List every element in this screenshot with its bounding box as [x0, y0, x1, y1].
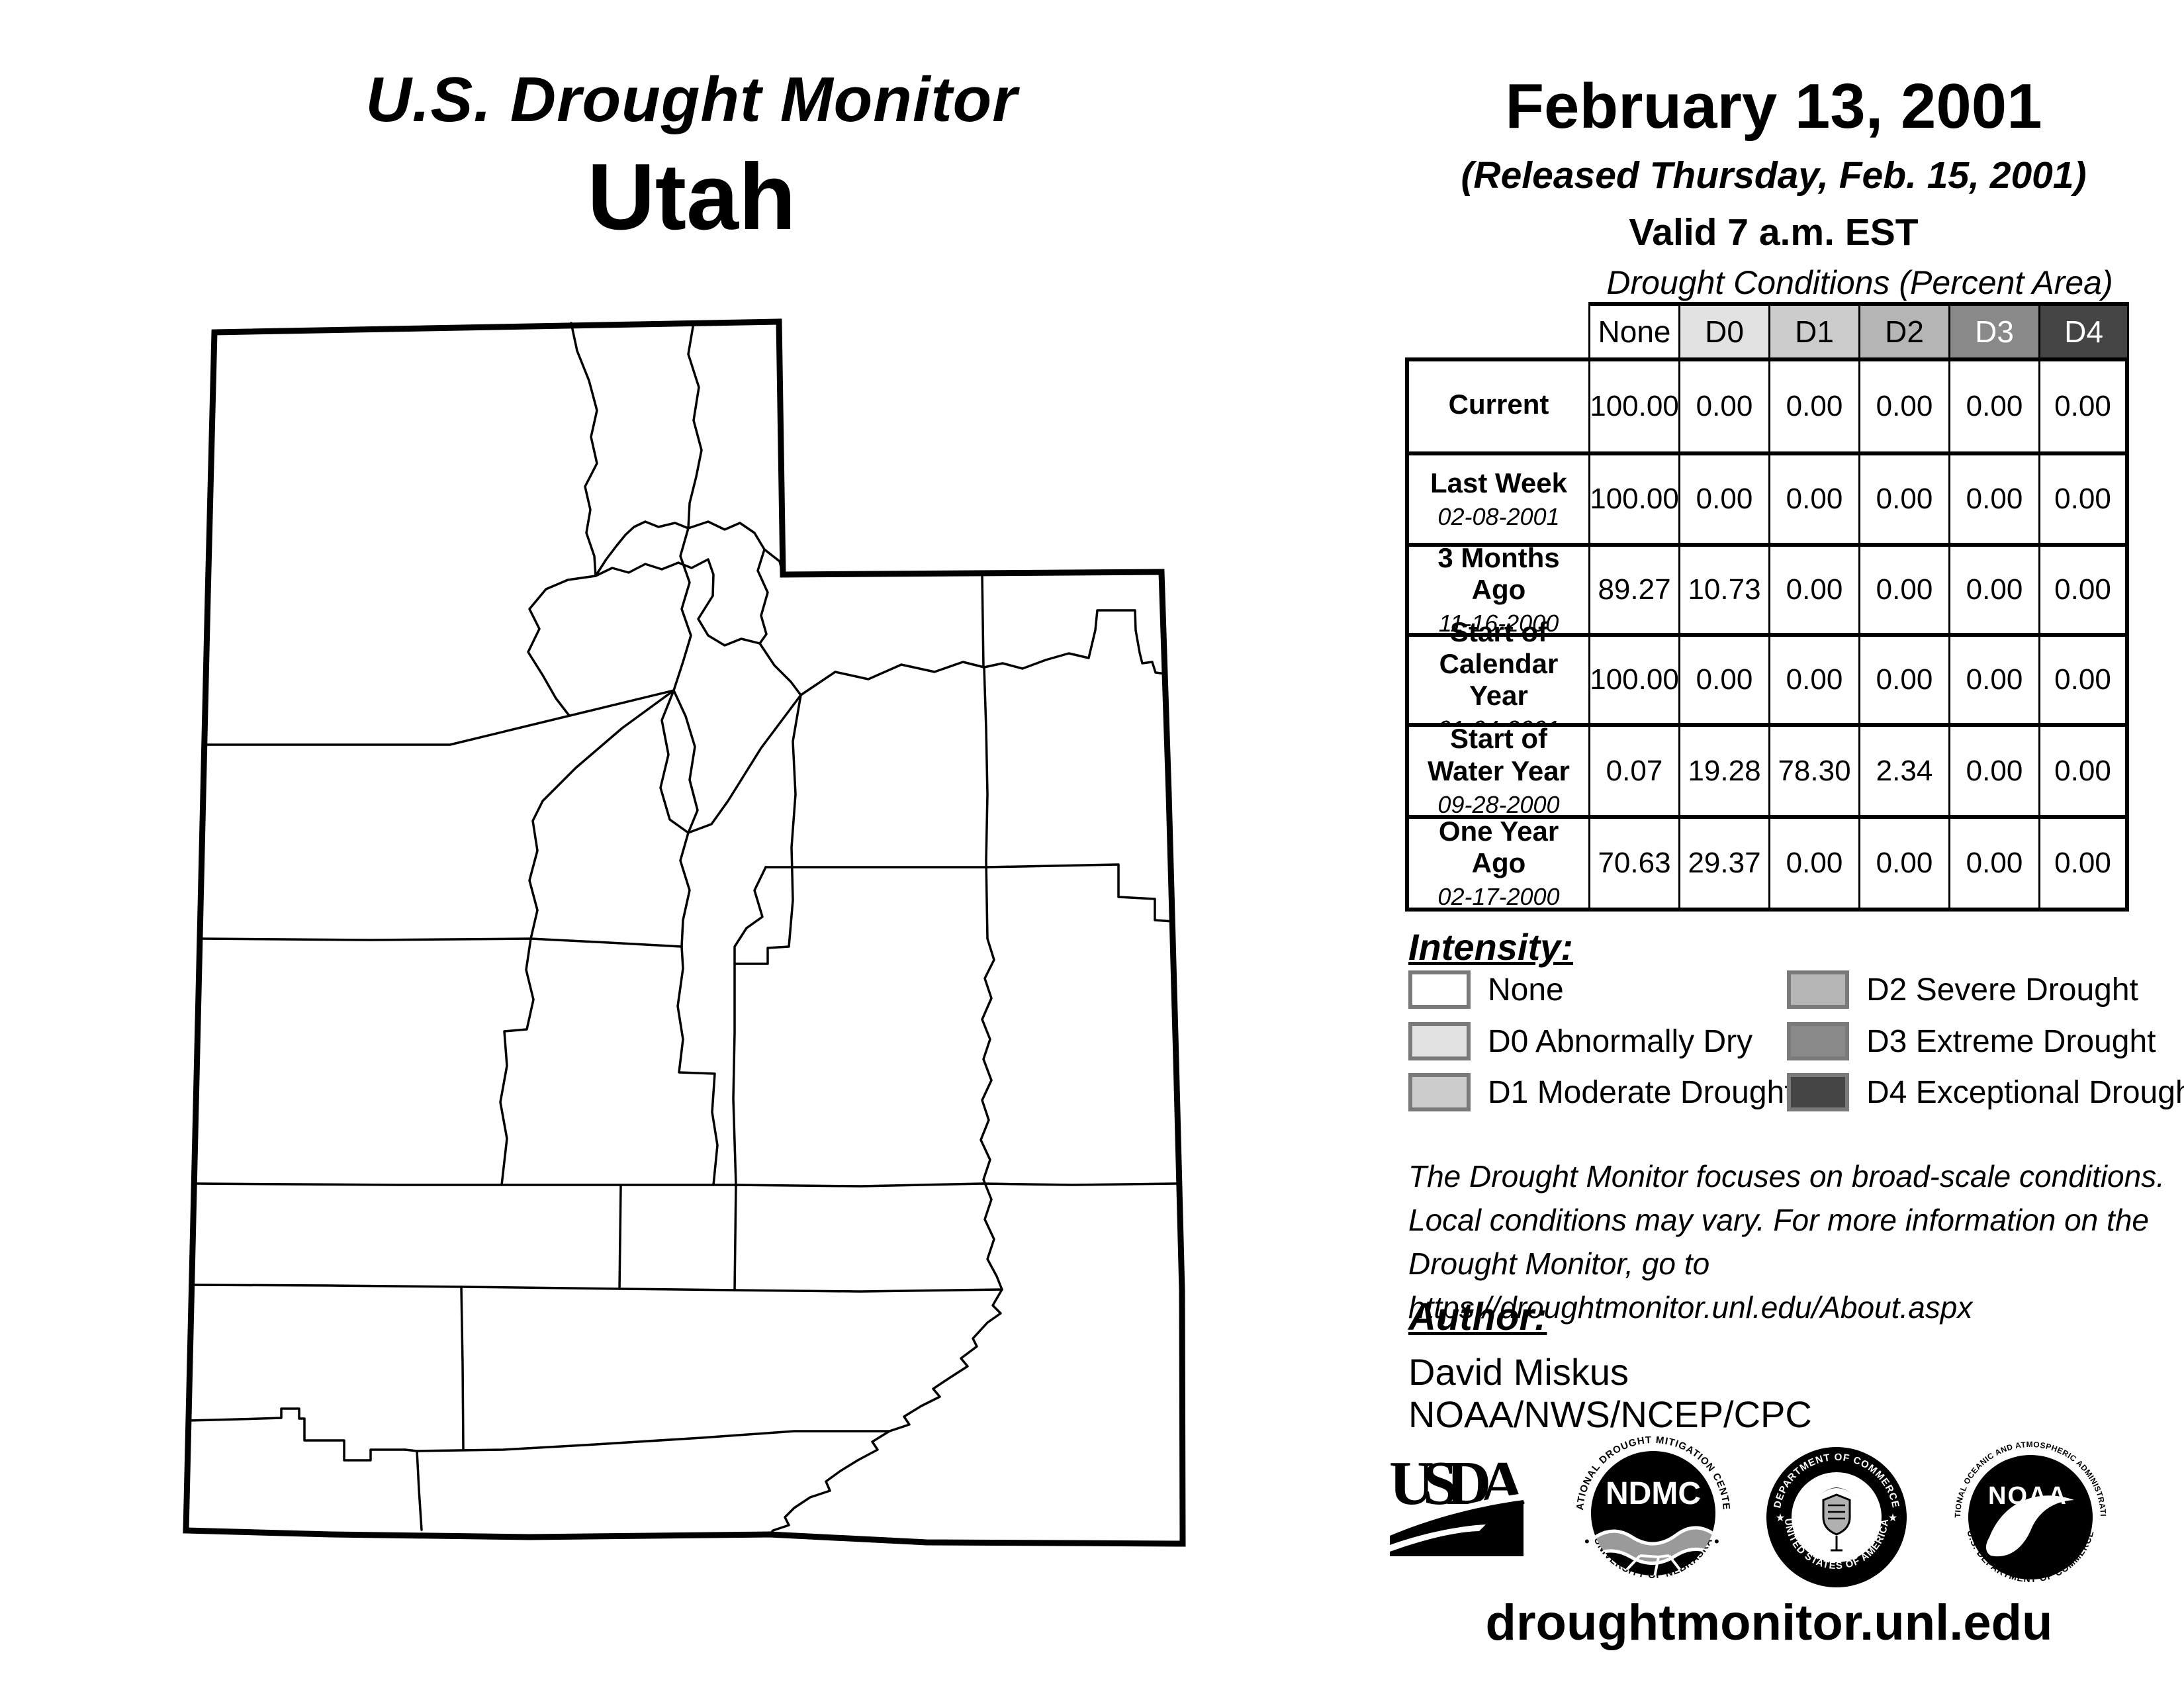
table-cell: 0.00: [2038, 543, 2129, 633]
legend-item-d2: D2 Severe Drought: [1787, 970, 2138, 1009]
column-header-d3: D3: [1948, 302, 2038, 357]
table-cell: 0.00: [1678, 451, 1768, 543]
legend-swatch-d1: [1408, 1073, 1471, 1111]
state-border: [186, 322, 1183, 1544]
table-cell: 0.00: [1768, 815, 1858, 912]
table-cell: 0.00: [1678, 357, 1768, 451]
ndmc-logo-text: NDMC: [1606, 1476, 1701, 1511]
commerce-seal-logo: DEPARTMENT OF COMMERCE UNITED STATES OF …: [1766, 1447, 1907, 1587]
state-name: Utah: [0, 143, 1383, 252]
table-cell: 0.00: [1678, 633, 1768, 723]
ndmc-dot-left: •: [1584, 1533, 1590, 1550]
column-header-d1: D1: [1768, 302, 1858, 357]
table-cell: 100.00: [1588, 451, 1678, 543]
table-cell: 0.00: [1948, 543, 2038, 633]
table-cell: 0.00: [2038, 633, 2129, 723]
row-label: Start of Calendar Year 01-04-2001: [1405, 633, 1588, 723]
legend-swatch-none: [1408, 970, 1471, 1009]
ndmc-dot-right: •: [1714, 1533, 1719, 1550]
table-cell: 70.63: [1588, 815, 1678, 912]
doc-star-left: ★: [1776, 1513, 1785, 1524]
table-cell: 0.00: [1858, 815, 1948, 912]
legend-swatch-d2: [1787, 970, 1849, 1009]
table-cell: 0.00: [1858, 633, 1948, 723]
page-title: U.S. Drought Monitor: [0, 64, 1383, 136]
legend-item-d4: D4 Exceptional Drought: [1787, 1073, 2184, 1111]
row-label: Current: [1405, 357, 1588, 451]
table-cell: 89.27: [1588, 543, 1678, 633]
legend-swatch-d3: [1787, 1022, 1849, 1060]
table-cell: 19.28: [1678, 723, 1768, 815]
table-cell: 0.00: [1858, 451, 1948, 543]
agency-logos: USDA NATIONAL DROUGHT MITIGATION CENTER …: [1377, 1436, 2131, 1599]
table-cell: 78.30: [1768, 723, 1858, 815]
table-cell: 0.00: [1768, 633, 1858, 723]
utah-map-svg: [165, 291, 1198, 1569]
date-block: February 13, 2001 (Released Thursday, Fe…: [1430, 70, 2118, 254]
table-cell: 0.07: [1588, 723, 1678, 815]
doc-star-right: ★: [1888, 1513, 1897, 1524]
valid-time: Valid 7 a.m. EST: [1430, 211, 2118, 254]
table-cell: 10.73: [1678, 543, 1768, 633]
disclaimer-line: Local conditions may vary. For more info…: [1408, 1198, 2184, 1242]
noaa-logo-text: NOAA: [1988, 1482, 2068, 1510]
table-cell: 0.00: [1948, 451, 2038, 543]
released-date: (Released Thursday, Feb. 15, 2001): [1430, 154, 2118, 197]
table-cell: 0.00: [2038, 357, 2129, 451]
table-cell: 0.00: [1858, 543, 1948, 633]
table-cell: 0.00: [2038, 451, 2129, 543]
table-cell: 0.00: [1768, 357, 1858, 451]
table-cell: 2.34: [1858, 723, 1948, 815]
table-corner: [1405, 302, 1588, 357]
usda-logo: USDA: [1389, 1449, 1525, 1556]
row-label: One Year Ago 02-17-2000: [1405, 815, 1588, 912]
legend-swatch-d4: [1787, 1073, 1849, 1111]
table-cell: 0.00: [1768, 543, 1858, 633]
utah-county-map: [165, 291, 1198, 1569]
drought-conditions-table: None D0 D1 D2 D3 D4 Current 100.00 0.00 …: [1405, 302, 2129, 912]
column-header-d2: D2: [1858, 302, 1948, 357]
table-cell: 0.00: [1948, 815, 2038, 912]
table-cell: 0.00: [1858, 357, 1948, 451]
table-cell: 0.00: [1948, 357, 2038, 451]
legend-item-d0: D0 Abnormally Dry: [1408, 1022, 1752, 1060]
drought-monitor-page: { "title_block": { "title": "U.S. Drough…: [0, 0, 2184, 1688]
logos-svg: USDA NATIONAL DROUGHT MITIGATION CENTER …: [1377, 1436, 2131, 1599]
map-date: February 13, 2001: [1430, 70, 2118, 143]
table-cell: 0.00: [1768, 451, 1858, 543]
table-cell: 100.00: [1588, 633, 1678, 723]
column-header-none: None: [1588, 302, 1678, 357]
author-organization: NOAA/NWS/NCEP/CPC: [1408, 1393, 1812, 1436]
table-cell: 100.00: [1588, 357, 1678, 451]
legend-item-d1: D1 Moderate Drought: [1408, 1073, 1794, 1111]
column-header-d0: D0: [1678, 302, 1768, 357]
footer-url: droughtmonitor.unl.edu: [1405, 1594, 2133, 1652]
table-cell: 0.00: [2038, 723, 2129, 815]
author-name: David Miskus: [1408, 1350, 1629, 1393]
row-label: Last Week 02-08-2001: [1405, 451, 1588, 543]
table-cell: 0.00: [1948, 633, 2038, 723]
table-title: Drought Conditions (Percent Area): [1588, 263, 2131, 302]
table-cell: 0.00: [2038, 815, 2129, 912]
author-heading: Author:: [1408, 1295, 1547, 1339]
legend-swatch-d0: [1408, 1022, 1471, 1060]
legend-heading: Intensity:: [1408, 925, 1573, 968]
disclaimer-line: The Drought Monitor focuses on broad-sca…: [1408, 1154, 2184, 1198]
legend-item-d3: D3 Extreme Drought: [1787, 1022, 2156, 1060]
title-block: U.S. Drought Monitor Utah: [0, 64, 1383, 252]
table-cell: 29.37: [1678, 815, 1768, 912]
legend-item-none: None: [1408, 970, 1564, 1009]
row-label: Start of Water Year 09-28-2000: [1405, 723, 1588, 815]
table-cell: 0.00: [1948, 723, 2038, 815]
column-header-d4: D4: [2038, 302, 2129, 357]
